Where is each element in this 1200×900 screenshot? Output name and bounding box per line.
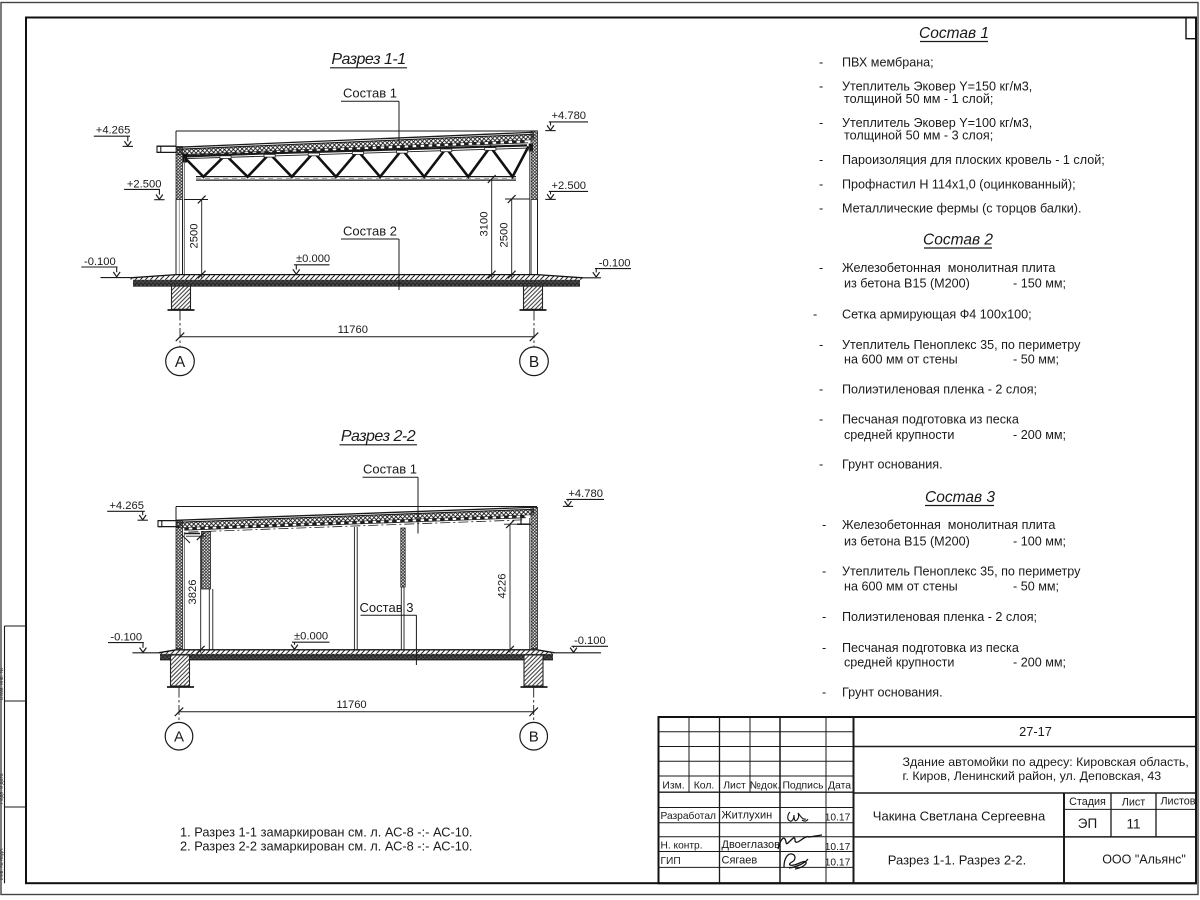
svg-text:-: -: [819, 338, 823, 352]
svg-text:- 200 мм;: - 200 мм;: [1013, 656, 1066, 670]
svg-text:толщиной 50 мм - 3 слоя;: толщиной 50 мм - 3 слоя;: [844, 128, 993, 142]
svg-text:-: -: [822, 686, 826, 700]
svg-text:- 50 мм;: - 50 мм;: [1013, 353, 1059, 367]
svg-text:-: -: [819, 56, 823, 70]
svg-text:2500: 2500: [499, 223, 511, 248]
svg-text:Разработал: Разработал: [661, 810, 717, 822]
svg-text:-: -: [819, 261, 823, 275]
svg-text:Состав 2: Состав 2: [343, 224, 397, 239]
svg-text:Подп. и дата: Подп. и дата: [0, 773, 5, 804]
svg-text:-: -: [819, 178, 823, 192]
svg-text:- 200 мм;: - 200 мм;: [1013, 428, 1066, 442]
svg-text:-: -: [819, 153, 823, 167]
svg-text:Инв. № подл.: Инв. № подл.: [0, 848, 5, 880]
svg-text:на 600 мм от стены: на 600 мм от стены: [844, 580, 958, 594]
svg-text:Чакина Светлана Сергеевна: Чакина Светлана Сергеевна: [873, 809, 1046, 824]
svg-text:В: В: [529, 354, 539, 371]
svg-text:4226: 4226: [497, 574, 509, 599]
svg-text:11760: 11760: [338, 324, 368, 336]
svg-text:+4.265: +4.265: [96, 125, 131, 137]
svg-text:Лист: Лист: [1122, 796, 1146, 808]
svg-text:3100: 3100: [479, 212, 491, 237]
svg-text:ЭП: ЭП: [1078, 816, 1097, 831]
svg-text:Житлухин: Житлухин: [722, 810, 773, 822]
svg-text:из бетона В15 (М200): из бетона В15 (М200): [844, 535, 970, 549]
svg-text:Стадия: Стадия: [1069, 796, 1106, 808]
svg-text:А: А: [174, 729, 184, 746]
svg-text:В: В: [529, 729, 539, 746]
svg-text:А: А: [175, 354, 186, 371]
svg-text:Утеплитель Пеноплекс 35, по пе: Утеплитель Пеноплекс 35, по периметру: [842, 565, 1081, 579]
svg-text:-: -: [819, 80, 823, 94]
svg-text:Листов: Листов: [1160, 796, 1195, 808]
svg-text:-: -: [822, 518, 826, 532]
svg-text:Разрез 2-2: Разрез 2-2: [341, 428, 416, 445]
svg-text:-: -: [819, 413, 823, 427]
svg-text:Профнастил Н 114х1,0 (оцинкова: Профнастил Н 114х1,0 (оцинкованный);: [842, 178, 1076, 192]
svg-text:11: 11: [1126, 816, 1140, 831]
svg-text:Песчаная подготовка из песка: Песчаная подготовка из песка: [842, 413, 1019, 427]
svg-text:Разрез 1-1: Разрез 1-1: [331, 51, 405, 68]
svg-text:-: -: [819, 116, 823, 130]
svg-text:-0.100: -0.100: [110, 632, 142, 644]
svg-text:Утеплитель Пеноплекс 35, по пе: Утеплитель Пеноплекс 35, по периметру: [842, 338, 1081, 352]
svg-text:- 150 мм;: - 150 мм;: [1013, 277, 1066, 291]
svg-text:2. Разрез 2-2 замаркирован см.: 2. Разрез 2-2 замаркирован см. л. АС-8 -…: [180, 838, 473, 853]
svg-text:Двоеглазов: Двоеглазов: [722, 839, 781, 851]
svg-text:Здание автомойки по адресу: Ки: Здание автомойки по адресу: Кировская об…: [903, 755, 1189, 769]
svg-text:Состав 2: Состав 2: [923, 232, 993, 249]
svg-text:Изм.: Изм.: [662, 780, 684, 791]
svg-text:- 100 мм;: - 100 мм;: [1013, 535, 1066, 549]
svg-text:Взам. инв. №: Взам. инв. №: [0, 667, 5, 700]
svg-text:Состав 1: Состав 1: [343, 86, 397, 101]
svg-text:Н. контр.: Н. контр.: [661, 840, 703, 851]
svg-text:-0.100: -0.100: [574, 635, 606, 647]
svg-text:г. Киров, Ленинский район, ул.: г. Киров, Ленинский район, ул. Деповская…: [903, 769, 1162, 783]
svg-text:10.17: 10.17: [825, 813, 851, 824]
svg-text:-: -: [819, 458, 823, 472]
svg-text:27-17: 27-17: [1019, 724, 1052, 739]
svg-text:Кол.: Кол.: [694, 780, 715, 791]
svg-text:Полиэтиленовая пленка - 2 слоя: Полиэтиленовая пленка - 2 слоя;: [842, 610, 1037, 624]
svg-text:Лист: Лист: [723, 780, 746, 791]
svg-text:толщиной 50 мм - 1 слой;: толщиной 50 мм - 1 слой;: [844, 92, 993, 106]
svg-text:+4.780: +4.780: [568, 488, 603, 500]
svg-text:- 50 мм;: - 50 мм;: [1013, 580, 1059, 594]
svg-text:Песчаная подготовка из песка: Песчаная подготовка из песка: [842, 641, 1019, 655]
svg-text:ПВХ мембрана;: ПВХ мембрана;: [842, 56, 934, 70]
svg-text:Сетка армирующая Ф4 100х100;: Сетка армирующая Ф4 100х100;: [842, 308, 1032, 322]
svg-text:-0.100: -0.100: [84, 256, 116, 268]
svg-text:Дата: Дата: [828, 780, 851, 791]
svg-text:-: -: [822, 610, 826, 624]
svg-text:Сягаев: Сягаев: [722, 855, 758, 867]
svg-text:средней крупности: средней крупности: [844, 656, 954, 670]
svg-text:№док.: №док.: [750, 780, 780, 791]
svg-text:Разрез 1-1. Разрез 2-2.: Разрез 1-1. Разрез 2-2.: [888, 852, 1026, 867]
svg-text:-: -: [822, 565, 826, 579]
svg-text:+4.265: +4.265: [109, 500, 144, 512]
svg-text:-: -: [813, 308, 817, 322]
svg-text:±0.000: ±0.000: [296, 253, 330, 265]
svg-text:±0.000: ±0.000: [294, 631, 328, 643]
svg-text:Грунт основания.: Грунт основания.: [842, 458, 943, 472]
svg-text:Металлические фермы (с торцов: Металлические фермы (с торцов балки).: [842, 202, 1081, 216]
svg-text:-: -: [819, 202, 823, 216]
svg-text:Железобетонная монолитная пли: Железобетонная монолитная плита: [842, 518, 1055, 532]
svg-text:3826: 3826: [187, 580, 199, 605]
svg-text:Подпись: Подпись: [782, 780, 823, 791]
svg-text:ГИП: ГИП: [661, 856, 681, 867]
svg-text:Пароизоляция для плоских крове: Пароизоляция для плоских кровель - 1 сло…: [842, 153, 1105, 167]
svg-text:Состав 3: Состав 3: [360, 600, 414, 615]
svg-text:+4.780: +4.780: [552, 110, 587, 122]
svg-text:10.17: 10.17: [825, 842, 851, 853]
svg-text:средней крупности: средней крупности: [844, 428, 954, 442]
svg-text:-: -: [822, 641, 826, 655]
svg-text:-: -: [819, 383, 823, 397]
svg-text:Состав 1: Состав 1: [363, 462, 417, 477]
svg-text:10.17: 10.17: [825, 857, 851, 868]
svg-text:ООО "Альянс": ООО "Альянс": [1102, 852, 1186, 866]
svg-text:на 600 мм от стены: на 600 мм от стены: [844, 353, 958, 367]
svg-text:Железобетонная монолитная пли: Железобетонная монолитная плита: [842, 261, 1055, 275]
svg-text:Грунт основания.: Грунт основания.: [842, 686, 943, 700]
svg-text:Полиэтиленовая пленка - 2 слоя: Полиэтиленовая пленка - 2 слоя;: [842, 383, 1037, 397]
svg-text:2500: 2500: [189, 224, 201, 249]
svg-text:из бетона В15 (М200): из бетона В15 (М200): [844, 277, 970, 291]
svg-text:Состав 1: Состав 1: [919, 25, 989, 42]
svg-text:11760: 11760: [336, 699, 366, 711]
svg-text:1. Разрез 1-1 замаркирован см.: 1. Разрез 1-1 замаркирован см. л. АС-8 -…: [180, 825, 473, 840]
svg-text:+2.500: +2.500: [552, 180, 587, 192]
svg-text:-0.100: -0.100: [599, 258, 631, 270]
svg-text:Состав 3: Состав 3: [925, 489, 995, 506]
